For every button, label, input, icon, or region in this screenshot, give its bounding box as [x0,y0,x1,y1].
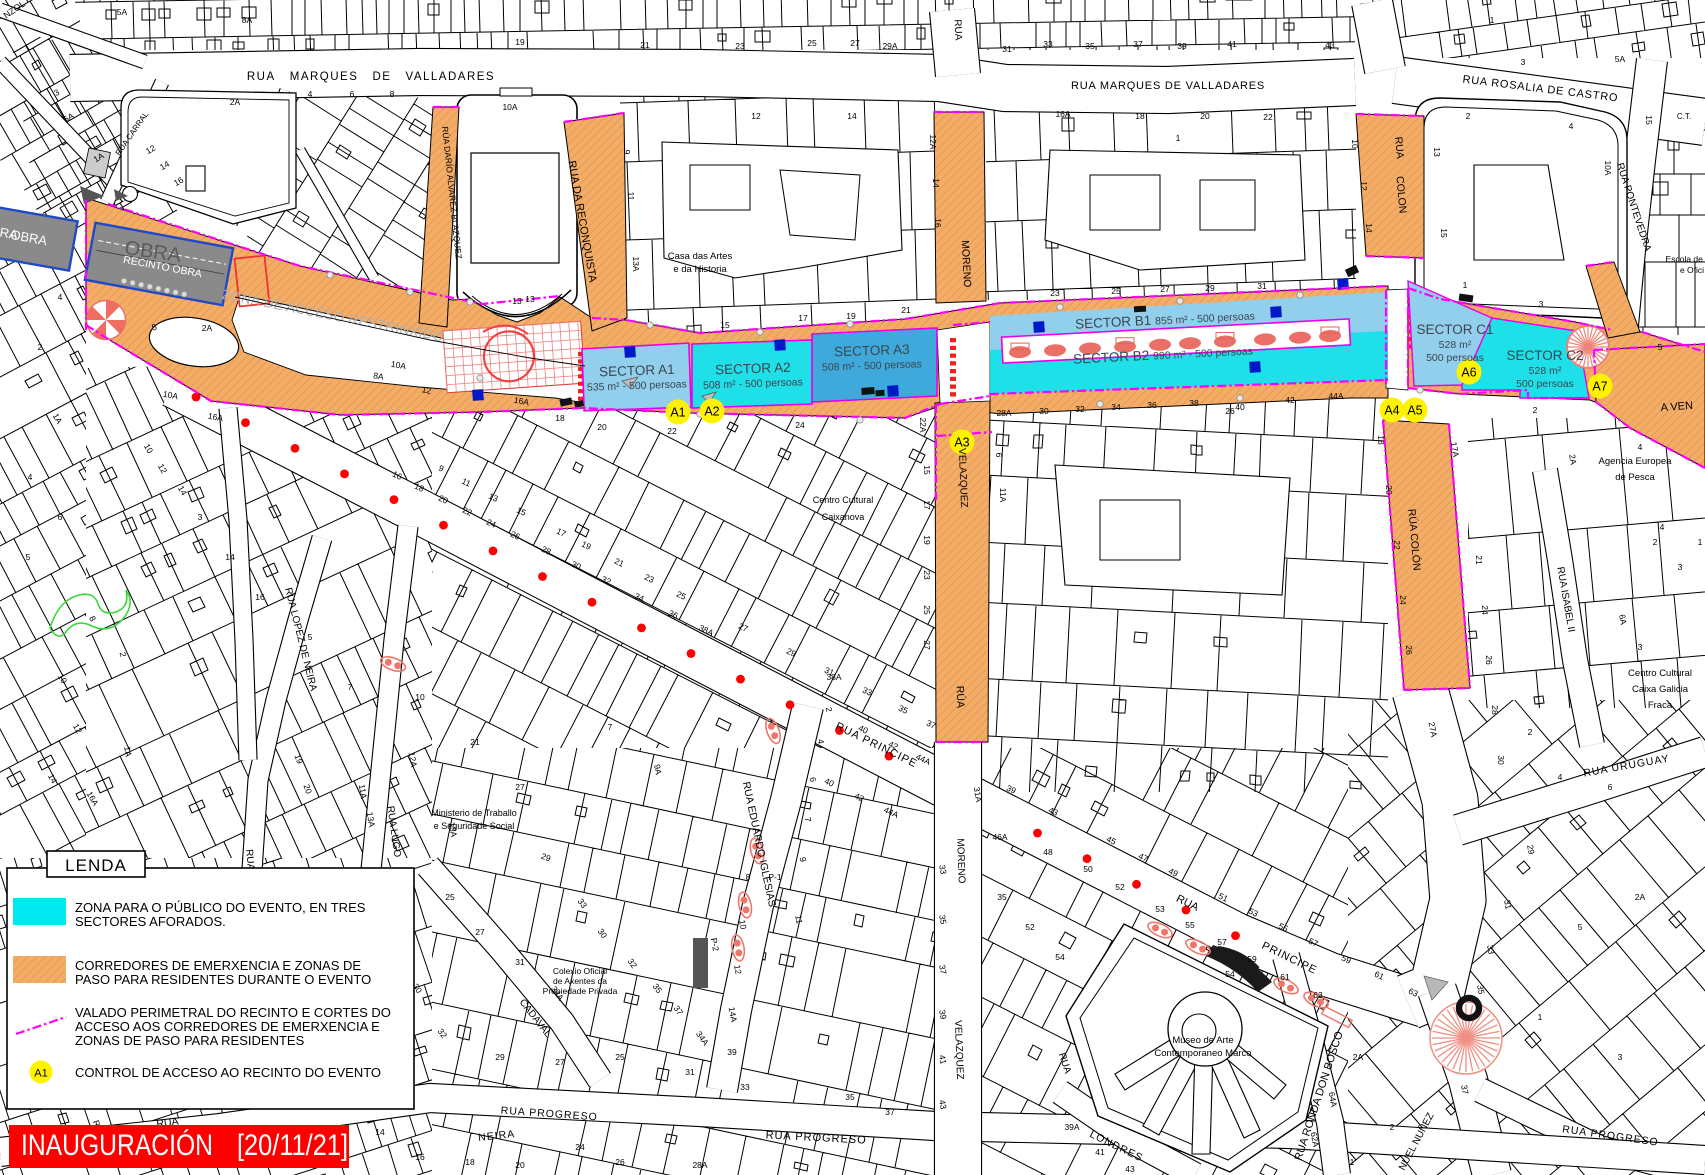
svg-text:25: 25 [445,892,455,902]
svg-text:46A: 46A [992,832,1007,842]
svg-text:SECTOR A3: SECTOR A3 [834,342,910,360]
svg-text:14: 14 [1364,223,1374,233]
svg-text:Caixanova: Caixanova [822,512,865,522]
svg-text:11A: 11A [998,488,1008,503]
svg-text:RUA: RUA [1392,136,1406,159]
svg-text:39: 39 [937,1009,949,1020]
svg-text:18: 18 [1135,111,1145,121]
svg-text:3: 3 [198,512,203,522]
svg-text:39: 39 [727,1047,737,1057]
svg-text:61: 61 [1280,972,1290,982]
svg-text:5: 5 [26,552,31,562]
svg-text:22: 22 [1392,540,1402,550]
svg-text:19: 19 [846,311,856,321]
svg-text:Centro Cultural: Centro Cultural [1628,668,1692,679]
svg-text:2A: 2A [1635,892,1646,902]
svg-text:27: 27 [555,1057,565,1067]
svg-text:23: 23 [922,570,932,580]
svg-text:5: 5 [308,632,313,642]
svg-text:SECTOR C1: SECTOR C1 [1416,322,1493,337]
svg-text:6: 6 [58,512,63,522]
svg-text:A1: A1 [670,406,685,420]
svg-text:25: 25 [615,1052,625,1062]
svg-text:19: 19 [922,535,932,545]
svg-text:1A: 1A [122,745,134,757]
svg-text:55: 55 [1185,920,1195,930]
svg-text:de Axentes da: de Axentes da [553,976,607,986]
svg-text:MORENO: MORENO [959,240,973,288]
svg-text:ACCESO AOS CORREDORES DE EMERX: ACCESO AOS CORREDORES DE EMERXENCIA E [75,1019,380,1034]
svg-text:24: 24 [575,1142,585,1152]
svg-text:52: 52 [1025,922,1035,932]
svg-text:13: 13 [512,296,522,306]
svg-text:1: 1 [1350,1157,1355,1167]
svg-text:A5: A5 [1407,404,1422,418]
svg-text:6: 6 [994,453,1004,458]
svg-text:4: 4 [28,472,33,482]
svg-text:12: 12 [751,111,761,121]
svg-text:33: 33 [1043,39,1053,49]
svg-text:17: 17 [798,313,808,323]
svg-text:4: 4 [1660,522,1665,532]
svg-text:23: 23 [1050,288,1060,298]
svg-text:19: 19 [515,37,525,47]
svg-text:23: 23 [735,41,745,51]
svg-text:C.T.: C.T. [1677,112,1691,121]
svg-text:20: 20 [1200,111,1210,121]
svg-text:1: 1 [1698,537,1703,547]
svg-text:4: 4 [1558,772,1563,782]
svg-text:20: 20 [597,422,607,432]
svg-text:2: 2 [38,342,43,352]
svg-text:Agencia Europea: Agencia Europea [1599,456,1673,467]
svg-text:26: 26 [1484,655,1494,665]
svg-text:2A: 2A [230,97,241,107]
svg-text:50: 50 [1083,864,1093,874]
svg-text:1: 1 [1538,1012,1543,1022]
svg-text:39: 39 [1177,41,1187,51]
svg-text:22: 22 [1263,112,1273,122]
svg-text:16: 16 [255,592,265,602]
svg-text:8A: 8A [242,15,253,25]
svg-text:24: 24 [1398,595,1408,605]
svg-text:43: 43 [1325,40,1335,50]
svg-text:INAUGURACIÓN: INAUGURACIÓN [21,1129,213,1162]
svg-text:31: 31 [1257,281,1267,291]
svg-text:9: 9 [622,150,632,155]
svg-text:PASO PARA RESIDENTES DURANTE O: PASO PARA RESIDENTES DURANTE O EVENTO [75,972,371,987]
svg-text:VALADO PERIMETRAL DO RECINTO E: VALADO PERIMETRAL DO RECINTO E CORTES DO [75,1005,391,1020]
svg-text:3: 3 [1521,57,1526,67]
svg-text:RA: RA [0,225,19,243]
svg-text:CONTROL DE ACCESO AO RECINTO D: CONTROL DE ACCESO AO RECINTO DO EVENTO [75,1065,381,1080]
svg-text:2A: 2A [1567,453,1579,465]
svg-text:31: 31 [1502,899,1514,910]
svg-text:30: 30 [1039,406,1049,416]
svg-text:8: 8 [746,872,751,882]
svg-text:4: 4 [308,89,313,99]
svg-text:21: 21 [901,305,911,315]
svg-text:4: 4 [58,292,63,302]
svg-text:33: 33 [1485,944,1497,955]
svg-text:Ministerio de Traballo: Ministerio de Traballo [431,808,517,818]
svg-text:3: 3 [1678,562,1683,572]
svg-text:36: 36 [1147,400,1157,410]
svg-text:1: 1 [1463,280,1468,290]
svg-text:8A: 8A [373,370,385,382]
svg-text:16: 16 [933,218,943,228]
svg-text:10: 10 [415,692,425,702]
svg-text:20: 20 [515,1160,525,1170]
svg-text:26: 26 [1404,645,1414,655]
svg-text:33: 33 [740,1082,750,1092]
svg-text:13: 13 [525,294,535,304]
svg-text:59: 59 [1247,954,1257,964]
svg-text:31: 31 [1002,44,1012,54]
svg-text:SECTORES AFORADOS.: SECTORES AFORADOS. [75,914,226,929]
svg-text:28A: 28A [996,408,1011,418]
svg-text:2: 2 [1528,727,1533,737]
svg-text:27: 27 [515,782,525,792]
svg-text:6: 6 [1608,782,1613,792]
svg-text:57: 57 [1217,937,1227,947]
svg-text:43: 43 [937,1099,949,1110]
svg-text:A6: A6 [1461,366,1476,380]
svg-text:25: 25 [807,38,817,48]
svg-text:53: 53 [1155,904,1165,914]
svg-text:CORREDORES DE EMERXENCIA E ZON: CORREDORES DE EMERXENCIA E ZONAS DE [75,958,361,973]
svg-text:Fraca: Fraca [1648,700,1673,711]
svg-text:RUA: RUA [951,19,963,41]
svg-text:38: 38 [1189,398,1199,408]
svg-text:11: 11 [626,192,636,201]
svg-text:1: 1 [1490,15,1495,25]
svg-text:27: 27 [850,38,860,48]
svg-text:12A: 12A [928,134,938,149]
svg-text:6A: 6A [1617,613,1629,625]
svg-text:29: 29 [1525,844,1537,855]
svg-text:42: 42 [1285,395,1295,405]
svg-text:15: 15 [1439,228,1449,238]
svg-text:63: 63 [1313,990,1323,1000]
svg-text:[20/11/21]: [20/11/21] [237,1129,348,1162]
svg-text:14: 14 [847,111,857,121]
svg-text:41: 41 [937,1054,949,1065]
svg-text:A2: A2 [704,405,719,419]
svg-text:528 m²: 528 m² [1439,339,1472,351]
svg-text:25: 25 [1111,286,1121,296]
svg-text:12: 12 [732,964,744,975]
svg-text:e da Historia: e da Historia [673,264,727,275]
svg-text:2: 2 [1533,405,1538,415]
svg-text:15: 15 [922,465,932,475]
svg-text:RÚA: RÚA [954,686,968,709]
svg-text:VELAZQUEZ: VELAZQUEZ [956,448,969,508]
svg-text:18: 18 [555,413,565,423]
svg-text:A7: A7 [1592,380,1607,394]
svg-text:ZONAS DE PASO PARA RESIDENTES: ZONAS DE PASO PARA RESIDENTES [75,1033,305,1048]
svg-text:12: 12 [1359,181,1369,191]
svg-text:2: 2 [1466,111,1471,121]
svg-text:40: 40 [1235,402,1245,412]
svg-text:5: 5 [1658,342,1663,352]
svg-text:41: 41 [1227,39,1237,49]
svg-text:SECTOR C2: SECTOR C2 [1506,348,1583,363]
svg-text:528 m²: 528 m² [1529,365,1562,377]
svg-text:16: 16 [415,1152,425,1162]
svg-text:14: 14 [225,552,235,562]
svg-text:54: 54 [1225,969,1235,979]
svg-text:41: 41 [1095,1147,1105,1157]
svg-text:37: 37 [885,1107,895,1117]
svg-text:13: 13 [1432,147,1442,157]
svg-text:27: 27 [922,640,932,650]
svg-text:22A: 22A [918,417,928,432]
svg-text:Escola de A: Escola de A [1666,254,1705,264]
svg-text:21: 21 [640,40,650,50]
svg-text:37: 37 [937,964,949,975]
svg-text:Colexio Oficial: Colexio Oficial [553,966,607,976]
svg-text:5: 5 [1578,922,1583,932]
svg-text:33: 33 [937,864,949,875]
svg-text:6: 6 [350,89,355,99]
svg-text:5A: 5A [117,7,128,17]
svg-text:29: 29 [1205,283,1215,293]
svg-text:500 persoas: 500 persoas [1426,352,1484,364]
svg-text:14: 14 [375,1127,385,1137]
svg-text:Casa das Artes: Casa das Artes [668,251,733,262]
svg-text:29: 29 [495,1052,505,1062]
svg-text:A4: A4 [1384,404,1399,418]
svg-text:10A: 10A [502,102,517,112]
svg-text:SECTOR A1: SECTOR A1 [599,362,675,380]
svg-text:10A: 10A [1603,160,1613,175]
svg-text:16A: 16A [1055,109,1070,119]
svg-text:7: 7 [608,722,613,732]
svg-text:500 persoas: 500 persoas [1516,378,1574,390]
svg-text:14: 14 [931,178,941,188]
svg-text:2A: 2A [202,323,213,333]
svg-text:52: 52 [1115,882,1125,892]
svg-text:54: 54 [1055,952,1065,962]
svg-text:3: 3 [1539,299,1544,309]
svg-text:26: 26 [615,1157,625,1167]
svg-text:8: 8 [390,89,395,99]
svg-text:25: 25 [922,605,932,615]
svg-text:30: 30 [1496,755,1506,765]
svg-text:15: 15 [720,320,730,330]
svg-text:22: 22 [667,426,677,436]
svg-text:34: 34 [1111,402,1121,412]
svg-text:RUA MARQUES DE VALLADARE: RUA MARQUES DE VALLADARES [247,71,495,83]
svg-text:27: 27 [475,927,485,937]
svg-text:28: 28 [1490,705,1500,715]
svg-text:RUA MARQUES DE VALLADARES: RUA MARQUES DE VALLADARES [1071,80,1265,92]
svg-text:35: 35 [845,1092,855,1102]
svg-text:7: 7 [348,682,353,692]
svg-text:3: 3 [1638,642,1643,652]
svg-text:ZONA PARA O PÚBLICO DO EVENTO,: ZONA PARA O PÚBLICO DO EVENTO, EN TRES [75,900,366,915]
svg-text:e Seguridade Social: e Seguridade Social [434,821,515,831]
svg-text:35: 35 [1085,41,1095,51]
svg-text:38A: 38A [826,672,841,682]
svg-text:3: 3 [1618,1052,1623,1062]
svg-text:Centro Cultural: Centro Cultural [813,495,874,505]
svg-text:18: 18 [1376,435,1386,445]
svg-text:21: 21 [470,737,480,747]
svg-text:9A: 9A [652,763,664,775]
svg-text:17: 17 [922,500,932,510]
svg-text:37: 37 [1459,1084,1471,1095]
svg-text:39A: 39A [1064,1122,1079,1132]
svg-text:37: 37 [1133,39,1143,49]
svg-text:de Pesca: de Pesca [1615,472,1655,483]
svg-text:4: 4 [1638,442,1643,452]
svg-text:A1: A1 [34,1068,47,1080]
svg-text:32: 32 [1075,404,1085,414]
svg-text:31: 31 [685,1067,695,1077]
svg-text:Museo de Arte: Museo de Arte [1172,1035,1233,1046]
svg-text:28A: 28A [692,1160,707,1170]
svg-text:MORENO: MORENO [954,838,967,884]
svg-text:P-1: P-1 [768,872,782,882]
svg-text:12: 12 [421,384,432,396]
svg-text:20: 20 [1384,485,1394,495]
svg-text:15: 15 [1644,115,1654,125]
svg-text:27: 27 [1160,284,1170,294]
svg-text:2: 2 [1653,537,1658,547]
svg-text:24: 24 [795,420,805,430]
svg-text:2A: 2A [1353,1052,1364,1062]
svg-text:35: 35 [1475,984,1487,995]
svg-text:Caixa Galicia: Caixa Galicia [1632,684,1689,695]
svg-text:10: 10 [737,919,749,930]
svg-text:26: 26 [1225,406,1235,416]
svg-text:5A: 5A [1615,54,1626,64]
svg-text:35: 35 [937,914,949,925]
svg-text:LENDA: LENDA [65,856,127,875]
svg-text:Contemporaneo Marco: Contemporaneo Marco [1154,1048,1251,1059]
svg-text:44A: 44A [1328,391,1343,401]
svg-text:13A: 13A [631,256,641,271]
svg-text:21: 21 [1474,555,1484,565]
svg-text:10: 10 [1350,139,1360,149]
svg-text:e Ofici: e Ofici [1680,265,1704,275]
svg-text:29A: 29A [882,41,897,51]
svg-text:24: 24 [1480,605,1490,615]
svg-text:18: 18 [465,1157,475,1167]
svg-text:1: 1 [1176,133,1181,143]
svg-text:31: 31 [515,957,525,967]
svg-text:VELAZQUEZ: VELAZQUEZ [952,1020,965,1080]
svg-text:A VEN: A VEN [1660,400,1693,414]
svg-text:SECTOR A2: SECTOR A2 [715,360,791,378]
svg-text:43: 43 [1125,1164,1135,1174]
svg-text:48: 48 [1043,847,1053,857]
svg-text:4: 4 [1569,121,1574,131]
svg-text:35: 35 [997,892,1007,902]
svg-text:2: 2 [1390,1122,1395,1132]
